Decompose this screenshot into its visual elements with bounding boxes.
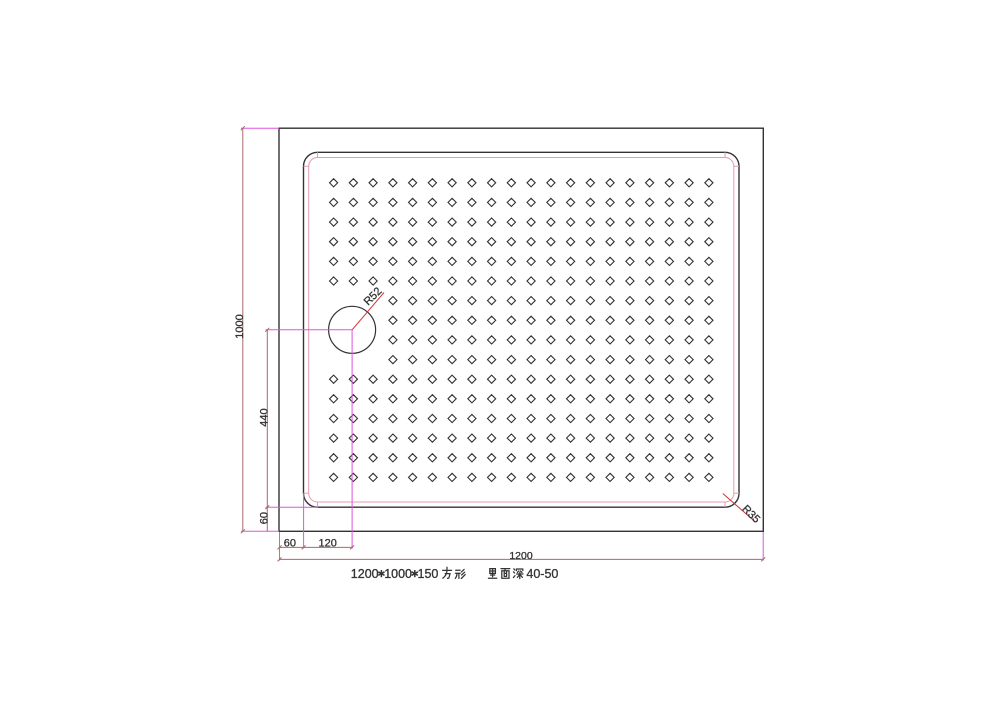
svg-text:40-50: 40-50 — [526, 567, 558, 581]
svg-text:1200: 1200 — [509, 550, 533, 562]
svg-text:60: 60 — [258, 512, 270, 524]
svg-text:1200: 1200 — [351, 567, 379, 581]
svg-text:120: 120 — [319, 538, 337, 550]
svg-text:1000: 1000 — [384, 567, 412, 581]
svg-text:60: 60 — [284, 538, 296, 550]
svg-text:440: 440 — [258, 408, 270, 426]
svg-text:150: 150 — [418, 567, 439, 581]
svg-text:1000: 1000 — [234, 314, 246, 338]
